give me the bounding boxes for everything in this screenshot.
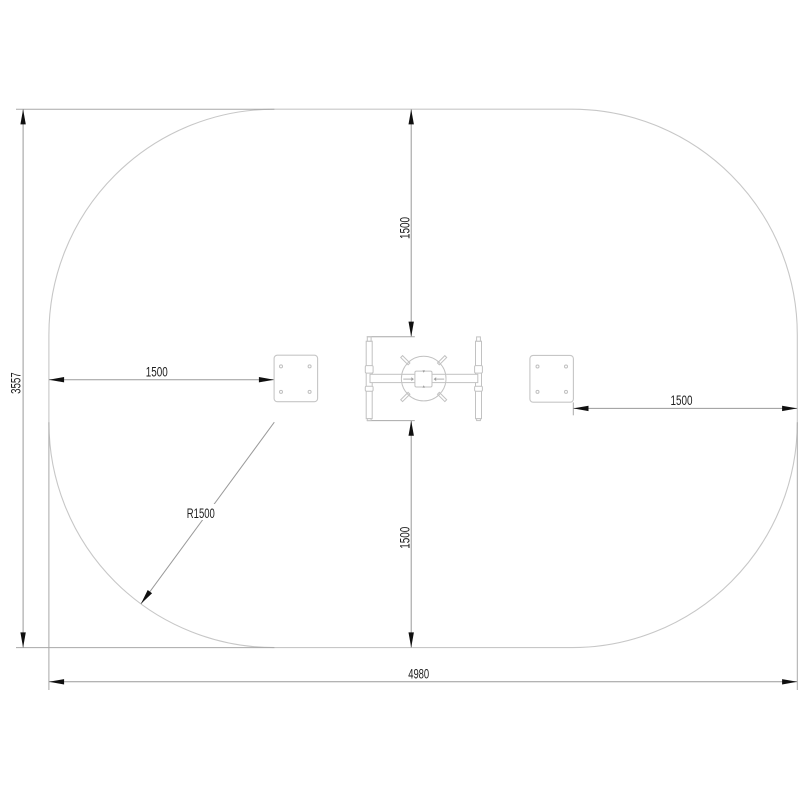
svg-text:1500: 1500 xyxy=(671,393,693,408)
svg-text:4980: 4980 xyxy=(408,667,429,682)
svg-text:1500: 1500 xyxy=(397,217,412,239)
svg-text:1500: 1500 xyxy=(146,365,168,380)
svg-text:1500: 1500 xyxy=(397,527,412,549)
svg-text:3557: 3557 xyxy=(8,372,23,394)
svg-text:R1500: R1500 xyxy=(187,506,215,521)
